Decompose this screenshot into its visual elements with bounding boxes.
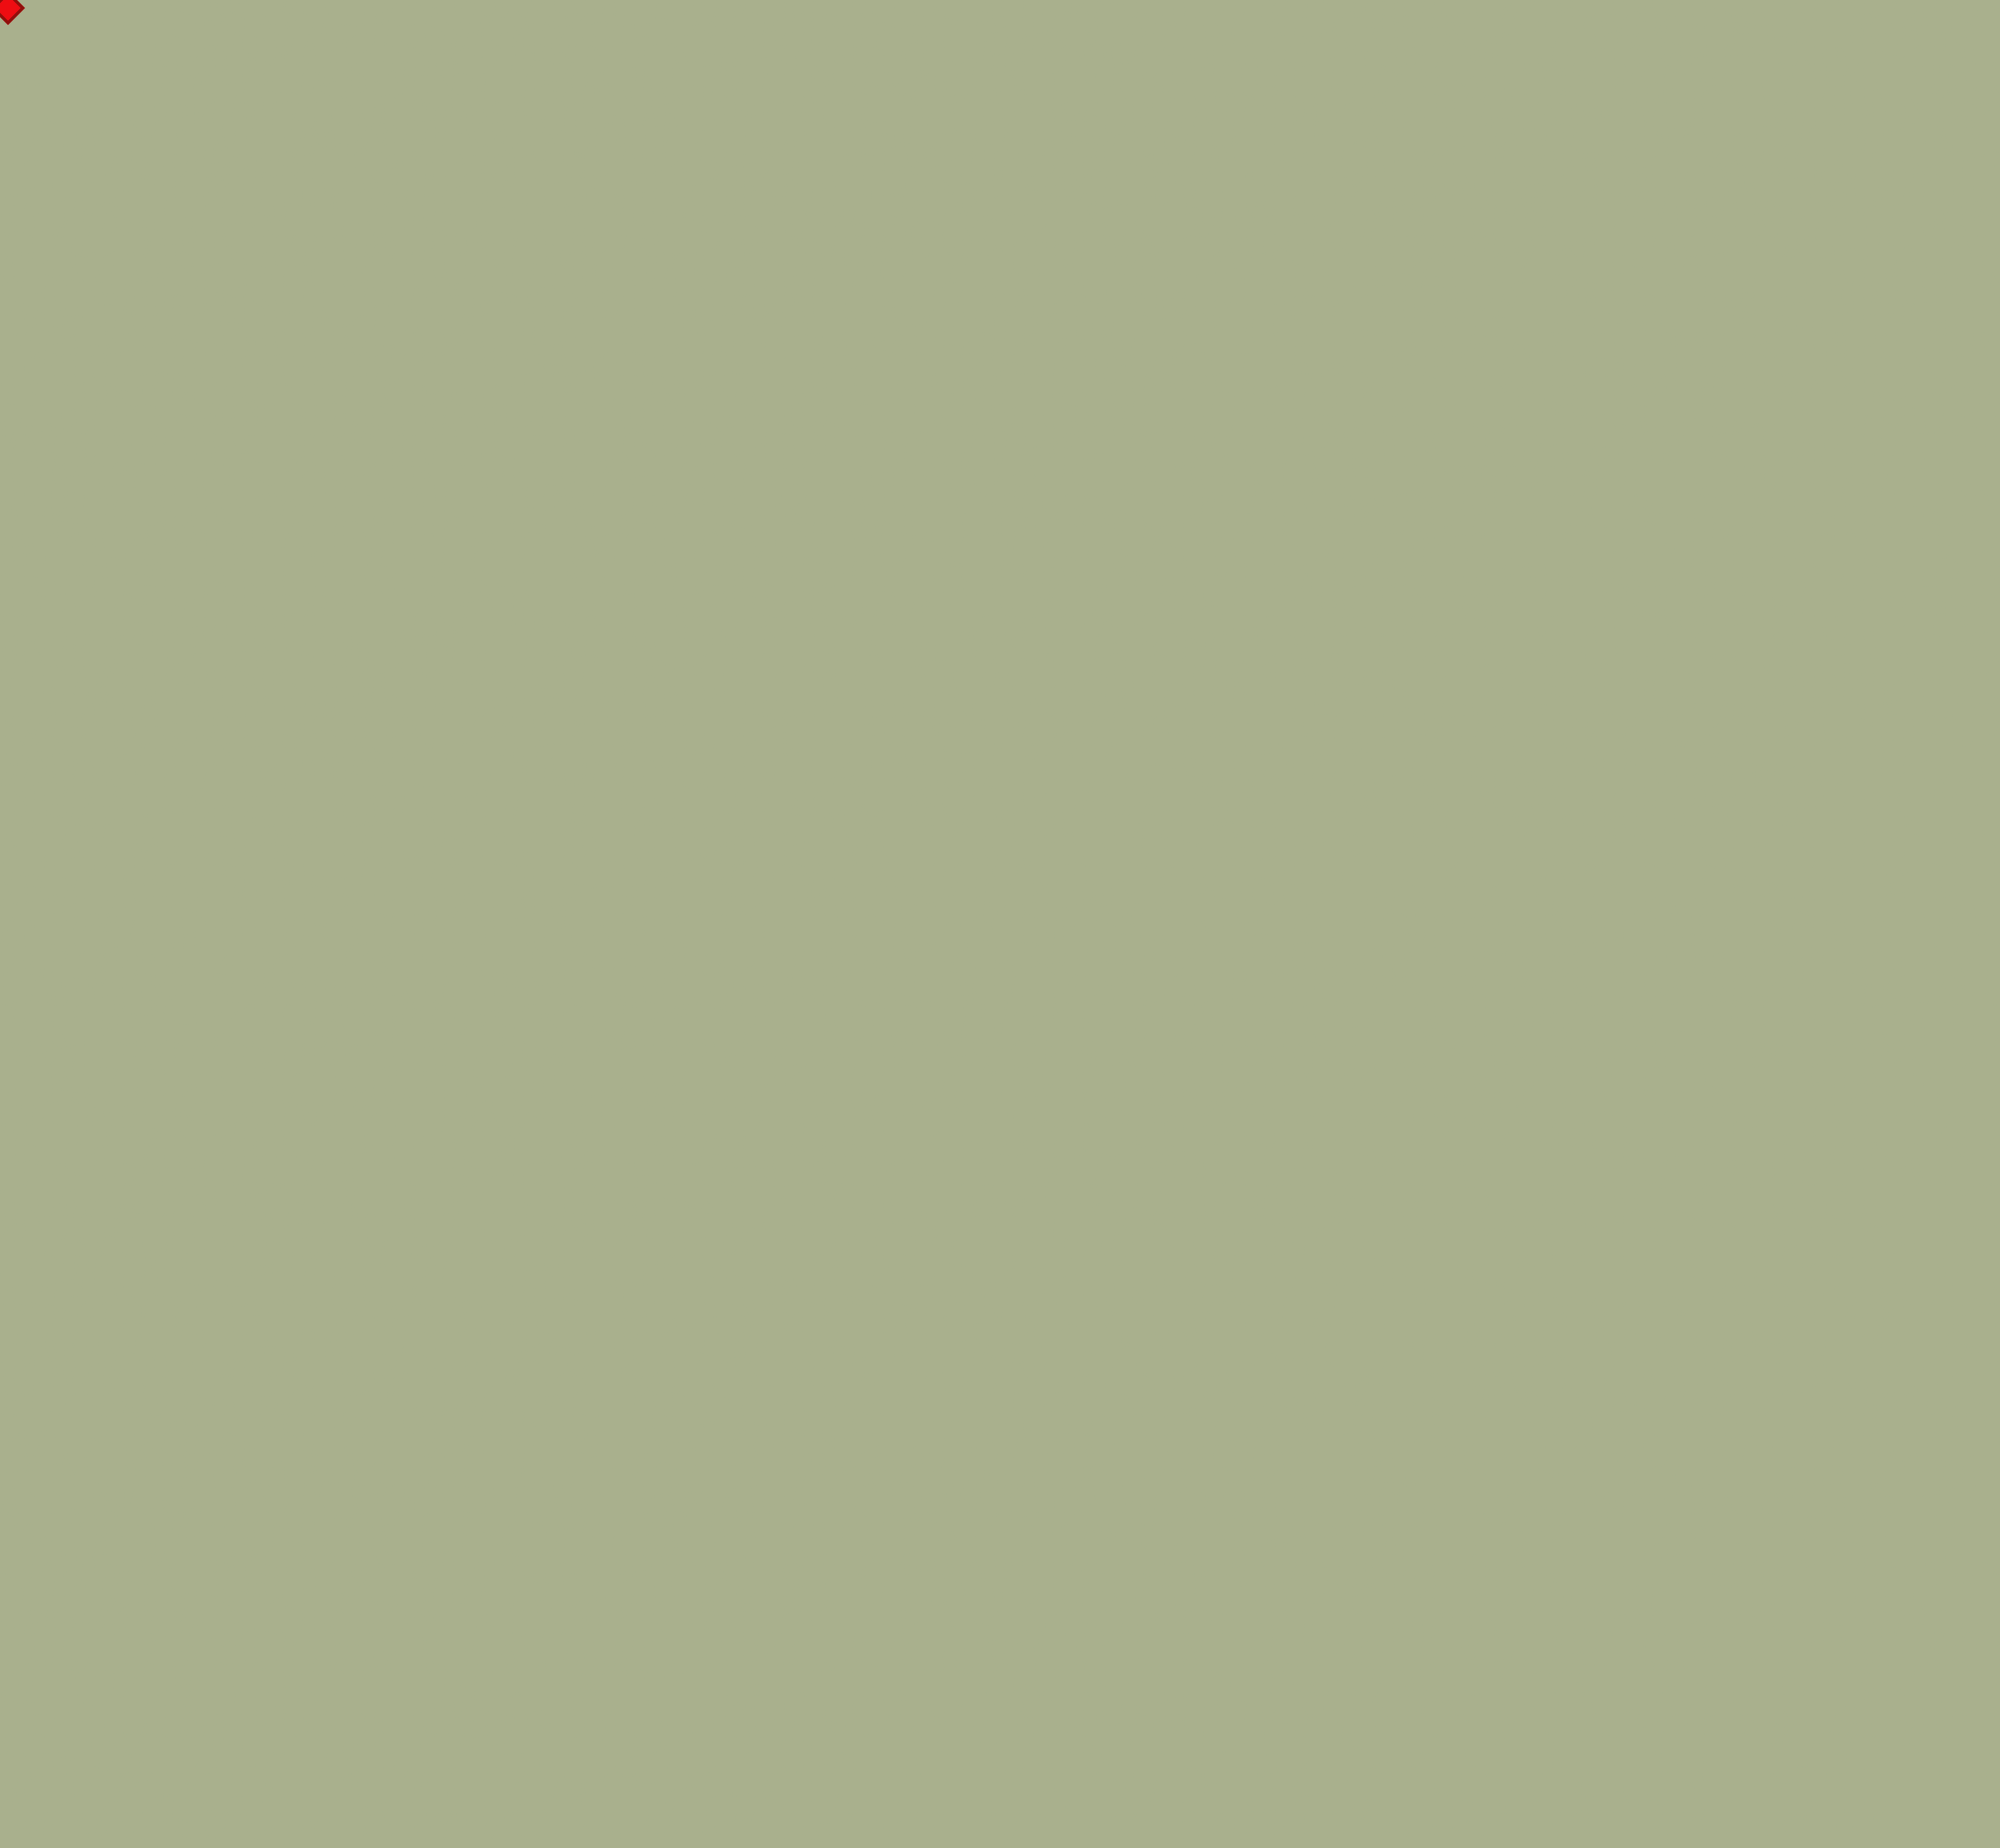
- labels-layer: [0, 0, 2000, 1848]
- marker-notch-icon: [0, 0, 25, 25]
- selected-parcel-marker[interactable]: [0, 0, 6, 6]
- map-canvas[interactable]: [0, 0, 2000, 1848]
